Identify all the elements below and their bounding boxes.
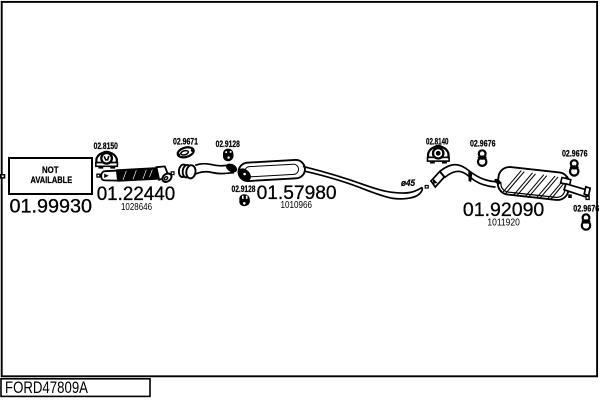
svg-text:ø45: ø45	[401, 178, 416, 188]
svg-text:AVAILABLE: AVAILABLE	[31, 175, 73, 185]
svg-text:FORD47809A: FORD47809A	[5, 379, 88, 397]
svg-text:02.9676: 02.9676	[573, 203, 599, 213]
svg-text:02.9676: 02.9676	[562, 149, 588, 159]
svg-text:1010966: 1010966	[281, 200, 313, 211]
svg-text:02.8150: 02.8150	[94, 141, 118, 151]
svg-text:01.99930: 01.99930	[10, 195, 93, 217]
svg-text:02.9128: 02.9128	[216, 139, 240, 149]
svg-text:02.9671: 02.9671	[173, 137, 198, 147]
svg-text:1011920: 1011920	[487, 217, 520, 228]
svg-text:02.9676: 02.9676	[470, 138, 496, 148]
svg-text:1028646: 1028646	[121, 202, 152, 213]
svg-text:02.8140: 02.8140	[426, 136, 449, 146]
svg-text:NOT: NOT	[42, 165, 59, 175]
svg-text:02.9128: 02.9128	[232, 184, 256, 194]
